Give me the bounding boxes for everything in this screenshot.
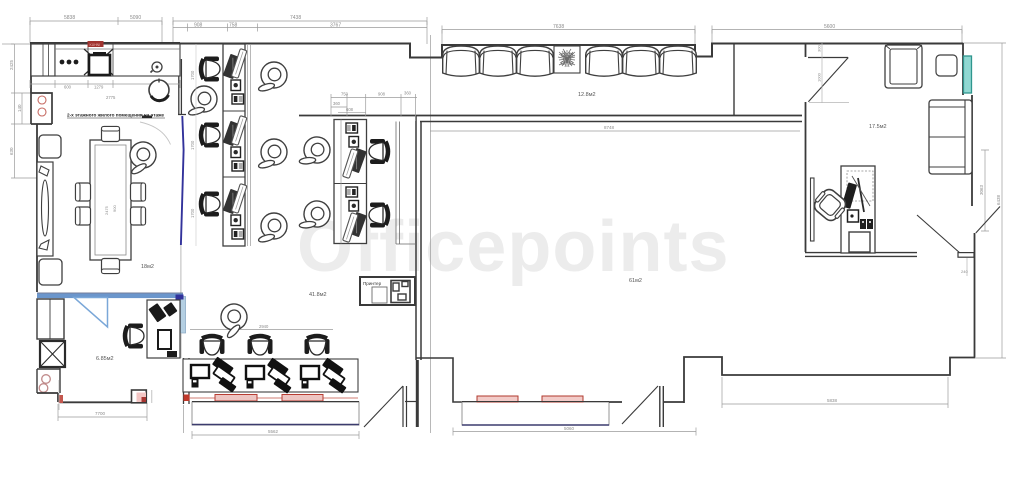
svg-text:5562: 5562 — [268, 429, 279, 434]
svg-text:KUHNI: KUHNI — [90, 43, 101, 47]
svg-text:7638: 7638 — [553, 24, 564, 30]
svg-text:12.8м2: 12.8м2 — [578, 92, 596, 98]
svg-text:240: 240 — [961, 269, 968, 274]
svg-text:2-х этажного жилого помещения: 2-х этажного жилого помещения на этаже — [67, 113, 165, 118]
svg-text:5838: 5838 — [64, 15, 75, 21]
svg-text:5090: 5090 — [130, 15, 141, 21]
svg-text:360: 360 — [333, 101, 341, 106]
svg-text:1700: 1700 — [190, 70, 195, 80]
svg-text:6438: 6438 — [996, 194, 1001, 205]
svg-text:750: 750 — [341, 92, 349, 97]
svg-text:5060: 5060 — [564, 426, 575, 431]
svg-text:3767: 3767 — [330, 23, 341, 29]
svg-text:1000: 1000 — [817, 72, 822, 82]
svg-text:908: 908 — [378, 92, 386, 97]
svg-text:5600: 5600 — [824, 24, 835, 30]
svg-text:2775: 2775 — [106, 95, 116, 100]
svg-text:608: 608 — [346, 107, 354, 112]
svg-text:17.5м2: 17.5м2 — [869, 124, 887, 130]
svg-text:140: 140 — [17, 104, 22, 112]
svg-text:360: 360 — [404, 91, 412, 96]
svg-text:1700: 1700 — [190, 208, 195, 218]
svg-text:900: 900 — [112, 205, 117, 212]
svg-text:2425: 2425 — [9, 59, 14, 70]
svg-text:7438: 7438 — [290, 15, 301, 21]
svg-text:2940: 2940 — [259, 324, 269, 329]
svg-text:3063: 3063 — [979, 184, 984, 195]
svg-text:41.8м2: 41.8м2 — [309, 292, 327, 298]
svg-text:5838: 5838 — [827, 398, 838, 403]
svg-text:2475: 2475 — [104, 205, 109, 215]
svg-text:1279: 1279 — [94, 85, 104, 90]
svg-text:6.85м2: 6.85м2 — [96, 356, 114, 362]
svg-text:1700: 1700 — [190, 140, 195, 150]
svg-text:600: 600 — [64, 85, 72, 90]
svg-text:Принтер: Принтер — [363, 281, 382, 286]
svg-text:7700: 7700 — [95, 411, 106, 416]
svg-text:18м2: 18м2 — [141, 264, 154, 270]
svg-text:300: 300 — [817, 45, 822, 52]
svg-text:8748: 8748 — [604, 125, 615, 130]
svg-text:61м2: 61м2 — [629, 278, 642, 284]
svg-text:758: 758 — [229, 23, 238, 29]
svg-text:630: 630 — [9, 147, 14, 155]
svg-text:908: 908 — [194, 23, 203, 29]
